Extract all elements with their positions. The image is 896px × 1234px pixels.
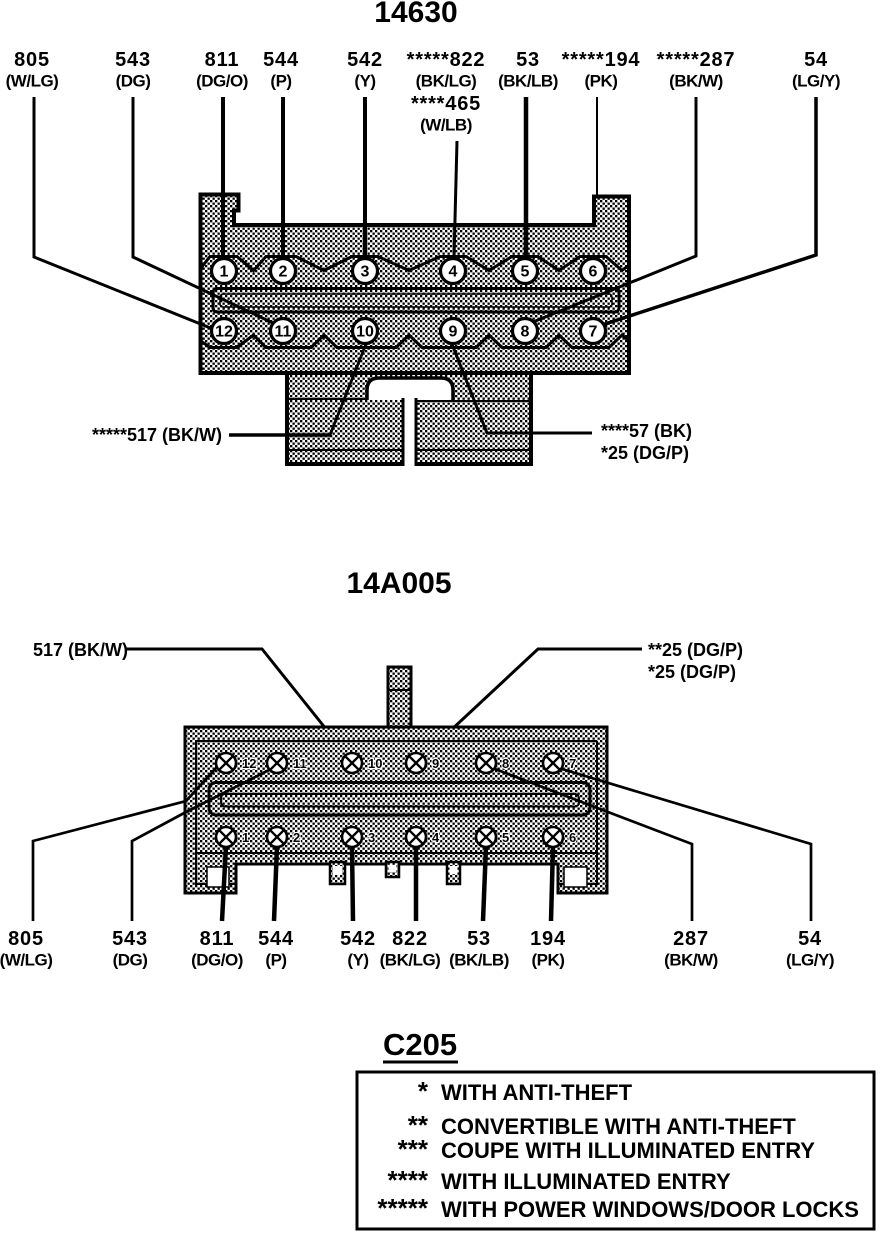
svg-text:(BK/W): (BK/W) <box>669 72 723 91</box>
svg-text:(PK): (PK) <box>532 951 565 970</box>
svg-text:WITH POWER WINDOWS/DOOR LOCKS: WITH POWER WINDOWS/DOOR LOCKS <box>441 1197 859 1222</box>
svg-text:7: 7 <box>569 756 576 771</box>
svg-text:6: 6 <box>569 830 576 845</box>
svg-text:287: 287 <box>673 928 709 950</box>
svg-text:(P): (P) <box>265 951 286 970</box>
svg-text:54: 54 <box>804 49 828 71</box>
svg-text:4: 4 <box>449 264 458 281</box>
svg-text:*****: ***** <box>377 1193 428 1223</box>
svg-text:3: 3 <box>368 830 375 845</box>
svg-text:53: 53 <box>467 928 491 950</box>
svg-text:1: 1 <box>220 264 229 281</box>
svg-text:(DG): (DG) <box>116 72 151 91</box>
svg-text:54: 54 <box>798 928 822 950</box>
svg-text:(Y): (Y) <box>354 72 375 91</box>
svg-text:822: 822 <box>392 928 428 950</box>
svg-text:COUPE WITH ILLUMINATED ENTRY: COUPE WITH ILLUMINATED ENTRY <box>441 1138 815 1163</box>
svg-text:12: 12 <box>215 324 233 341</box>
svg-text:(W/LG): (W/LG) <box>6 72 59 91</box>
svg-text:5: 5 <box>521 264 530 281</box>
svg-text:7: 7 <box>589 324 598 341</box>
svg-text:9: 9 <box>449 324 458 341</box>
svg-text:5: 5 <box>502 830 509 845</box>
svg-text:543: 543 <box>115 49 151 71</box>
svg-text:*25 (DG/P): *25 (DG/P) <box>601 443 689 463</box>
svg-text:11: 11 <box>275 324 292 341</box>
svg-text:***: *** <box>398 1134 429 1164</box>
svg-text:(LG/Y): (LG/Y) <box>786 951 834 970</box>
svg-text:C205: C205 <box>383 1027 457 1062</box>
svg-text:(LG/Y): (LG/Y) <box>792 72 840 91</box>
svg-text:(W/LB): (W/LB) <box>420 116 472 135</box>
svg-text:(DG/O): (DG/O) <box>191 951 243 970</box>
svg-text:****465: ****465 <box>411 93 481 115</box>
svg-text:****: **** <box>388 1165 429 1195</box>
svg-text:811: 811 <box>205 49 240 71</box>
svg-text:6: 6 <box>589 264 598 281</box>
svg-text:53: 53 <box>516 49 540 71</box>
svg-text:(P): (P) <box>270 72 291 91</box>
svg-text:(DG): (DG) <box>113 951 148 970</box>
svg-text:194: 194 <box>530 928 566 950</box>
svg-text:805: 805 <box>8 928 44 950</box>
svg-text:*****822: *****822 <box>407 49 486 71</box>
svg-text:544: 544 <box>258 928 294 950</box>
svg-text:11: 11 <box>293 756 307 771</box>
svg-text:2: 2 <box>279 264 288 281</box>
svg-text:*****287: *****287 <box>657 49 736 71</box>
svg-text:(BK/W): (BK/W) <box>664 951 718 970</box>
svg-text:9: 9 <box>432 756 439 771</box>
svg-text:10: 10 <box>356 324 374 341</box>
svg-text:3: 3 <box>361 264 370 281</box>
svg-text:811: 811 <box>200 928 235 950</box>
svg-text:(BK/LB): (BK/LB) <box>498 72 558 91</box>
svg-text:*25 (DG/P): *25 (DG/P) <box>648 662 736 682</box>
svg-text:*****517 (BK/W): *****517 (BK/W) <box>92 425 222 445</box>
svg-text:2: 2 <box>293 830 300 845</box>
svg-text:(PK): (PK) <box>585 72 618 91</box>
svg-text:543: 543 <box>112 928 148 950</box>
svg-text:**25 (DG/P): **25 (DG/P) <box>648 640 743 660</box>
svg-text:14A005: 14A005 <box>346 567 451 600</box>
svg-text:WITH ANTI-THEFT: WITH ANTI-THEFT <box>441 1080 633 1105</box>
svg-text:(BK/LG): (BK/LG) <box>416 72 477 91</box>
svg-text:*: * <box>418 1076 429 1106</box>
svg-text:****57 (BK): ****57 (BK) <box>601 421 692 441</box>
svg-text:CONVERTIBLE WITH ANTI-THEFT: CONVERTIBLE WITH ANTI-THEFT <box>441 1114 796 1139</box>
svg-text:8: 8 <box>521 324 530 341</box>
svg-text:8: 8 <box>502 756 509 771</box>
svg-text:(Y): (Y) <box>347 951 368 970</box>
svg-text:542: 542 <box>347 49 383 71</box>
svg-text:517 (BK/W): 517 (BK/W) <box>33 640 128 660</box>
svg-text:12: 12 <box>242 756 256 771</box>
svg-text:1: 1 <box>242 830 249 845</box>
svg-text:805: 805 <box>14 49 50 71</box>
svg-text:542: 542 <box>340 928 376 950</box>
svg-text:*****194: *****194 <box>562 49 641 71</box>
svg-text:WITH ILLUMINATED ENTRY: WITH ILLUMINATED ENTRY <box>441 1169 731 1194</box>
svg-text:(BK/LG): (BK/LG) <box>380 951 441 970</box>
svg-text:14630: 14630 <box>374 0 457 29</box>
svg-text:(BK/LB): (BK/LB) <box>449 951 509 970</box>
svg-text:(DG/O): (DG/O) <box>196 72 248 91</box>
svg-text:(W/LG): (W/LG) <box>0 951 52 970</box>
svg-text:544: 544 <box>263 49 299 71</box>
svg-text:4: 4 <box>432 830 440 845</box>
svg-text:10: 10 <box>368 756 382 771</box>
